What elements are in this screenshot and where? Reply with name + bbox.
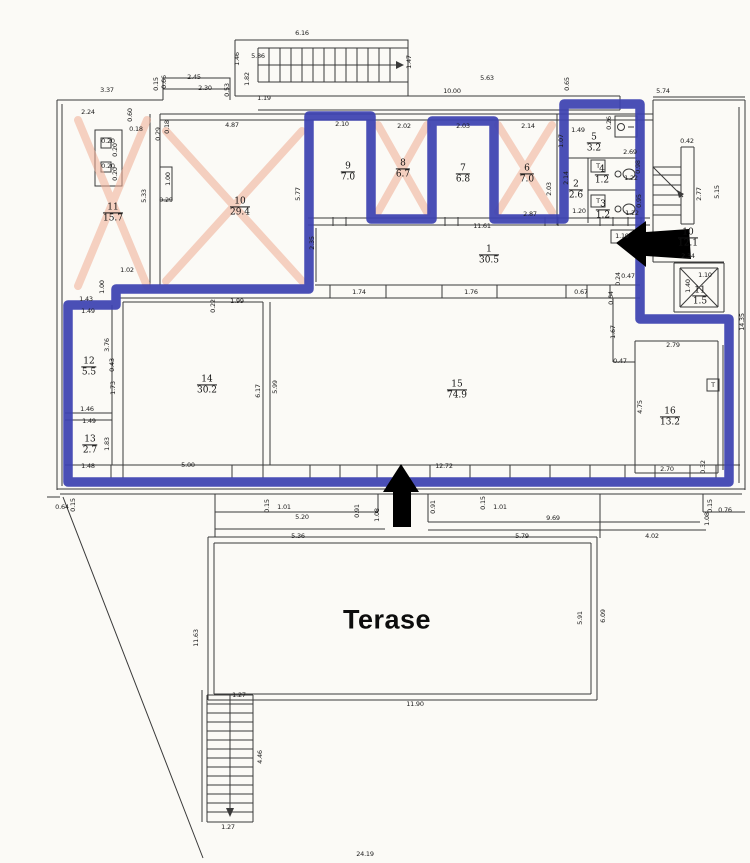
dim-label: 2.14 (521, 123, 535, 130)
dim-label: 1.27 (232, 692, 246, 699)
dim-label: 1.22 (625, 210, 639, 217)
dim-label: 2.03 (456, 123, 470, 130)
room-label-10: 1029.4 (230, 196, 250, 217)
dim-label: 0.29 (159, 197, 173, 204)
dim-label: 2.87 (523, 211, 537, 218)
dim-label: 1.43 (79, 296, 93, 303)
dim-label: 11.61 (473, 223, 491, 230)
dim-label: 1.19 (615, 233, 629, 240)
dim-label: 1.20 (572, 208, 586, 215)
dim-label: 0.18 (164, 120, 171, 134)
room-number: 13 (82, 434, 97, 445)
room-label-16: 1613.2 (660, 406, 680, 427)
dim-label: 1.08 (704, 512, 711, 526)
room-label-6: 67.0 (520, 163, 534, 184)
dim-label: 1.76 (464, 289, 478, 296)
dim-label: 1.99 (230, 298, 244, 305)
dim-label: T (711, 382, 715, 389)
room-number: 16 (660, 406, 680, 417)
dim-label: 0.15 (480, 496, 487, 510)
dim-label: 11.63 (193, 629, 200, 647)
room-label-11: 111.5 (692, 285, 707, 306)
dim-label: 4.46 (257, 750, 264, 764)
room-area: 7.0 (520, 175, 534, 185)
dim-label: 1.40 (685, 279, 692, 293)
dim-label: 0.26 (606, 116, 613, 130)
dim-label: 4.87 (225, 122, 239, 129)
dim-label: 0.20 (112, 143, 119, 157)
room-label-15: 1574.9 (447, 379, 467, 400)
arrow-up-icon (383, 464, 419, 527)
room-label-2: 22.6 (569, 179, 583, 200)
dim-label: 5.63 (480, 75, 494, 82)
dim-label: 0.15 (153, 77, 160, 91)
dim-label: 1.10 (698, 272, 712, 279)
room-number: 7 (456, 163, 470, 174)
dim-label: 0.22 (210, 299, 217, 313)
room-number: 1 (479, 244, 499, 255)
room-area: 13.2 (660, 418, 680, 428)
dim-label: 0.76 (718, 507, 732, 514)
dim-label: 5.00 (181, 462, 195, 469)
dim-label: 1.49 (81, 308, 95, 315)
room-label-11: 1115.7 (103, 202, 123, 223)
dim-label: 0.64 (55, 504, 69, 511)
room-number: 5 (587, 132, 601, 143)
dim-label: 2.70 (660, 466, 674, 473)
room-number: 15 (447, 379, 467, 390)
dim-label: 0.60 (127, 108, 134, 122)
dim-label: 0.24 (615, 272, 622, 286)
room-area: 1.2 (595, 176, 609, 186)
dim-label: 1.01 (493, 504, 507, 511)
dim-label: 1.74 (352, 289, 366, 296)
dim-label: 1.73 (110, 381, 117, 395)
floor-plan: 6.165.861.461.821.472.452.300.531.190.15… (0, 0, 750, 863)
room-label-7: 76.8 (456, 163, 470, 184)
dim-label: 1.46 (80, 406, 94, 413)
dim-label: 0.64 (608, 291, 615, 305)
room-area: 2.7 (82, 446, 97, 456)
dim-label: 3.76 (104, 338, 111, 352)
room-label-10: 1012.1 (678, 227, 698, 248)
room-area: 6.8 (456, 175, 470, 185)
dim-label: 2.45 (187, 74, 201, 81)
stairs-right (611, 100, 724, 312)
dim-label: 2.77 (696, 187, 703, 201)
dim-label: 2.02 (397, 123, 411, 130)
dim-label: 1.83 (104, 437, 111, 451)
room-area: 7.0 (341, 173, 355, 183)
dim-label: 6.16 (295, 30, 309, 37)
dim-label: 0.29 (155, 127, 162, 141)
room-number: 10 (678, 227, 698, 238)
room-label-3: 31.2 (596, 199, 610, 220)
dim-label: 1.49 (571, 127, 585, 134)
dim-label: 2.69 (623, 149, 637, 156)
dim-label: 2.34 (681, 253, 695, 260)
dim-label: 1.00 (99, 280, 106, 294)
room-label-13: 132.7 (82, 434, 97, 455)
dim-label: 1.27 (221, 824, 235, 831)
room-label-8: 86.7 (396, 158, 410, 179)
room-label-12: 125.5 (81, 356, 96, 377)
dim-label: 1.67 (610, 325, 617, 339)
room-number: 10 (230, 196, 250, 207)
dim-label: 1.47 (406, 55, 413, 69)
dim-label: 4.02 (645, 533, 659, 540)
dim-label: 5.99 (272, 380, 279, 394)
dim-label: 14.35 (739, 313, 746, 331)
room-label-1: 130.5 (479, 244, 499, 265)
dim-label: 0.91 (430, 500, 437, 514)
dim-label: 5.36 (291, 533, 305, 540)
room-area: 5.5 (81, 368, 96, 378)
room-area: 74.9 (447, 391, 467, 401)
dim-label: 4.75 (637, 400, 644, 414)
dim-label: 0.91 (354, 504, 361, 518)
dim-label: 5.79 (515, 533, 529, 540)
terrace-label: Terase (343, 605, 431, 636)
room-area: 1.5 (692, 297, 707, 307)
dim-label: 0.95 (636, 194, 643, 208)
dim-label: 11.90 (406, 701, 424, 708)
dim-label: 2.79 (666, 342, 680, 349)
room-number: 11 (692, 285, 707, 296)
dim-label: 24.19 (356, 851, 374, 858)
dim-label: 1.22 (624, 175, 638, 182)
room-number: 11 (103, 202, 123, 213)
dim-label: 2.03 (546, 182, 553, 196)
dim-label: 0.67 (574, 289, 588, 296)
terrace-and-stairs-bottom (63, 494, 745, 858)
dim-label: 0.15 (70, 498, 77, 512)
room-area: 29.4 (230, 208, 250, 218)
dim-label: 5.33 (141, 189, 148, 203)
dim-label: 2.35 (309, 236, 316, 250)
room-number: 8 (396, 158, 410, 169)
room-label-4: 41.2 (595, 164, 609, 185)
room-number: 6 (520, 163, 534, 174)
dim-label: 0.47 (621, 273, 635, 280)
room-label-9: 97.0 (341, 161, 355, 182)
dim-label: 5.86 (251, 53, 265, 60)
dim-label: 2.30 (198, 85, 212, 92)
dim-label: 0.53 (224, 83, 231, 97)
dim-label: 0.18 (129, 126, 143, 133)
dim-label: 0.15 (707, 499, 714, 513)
dim-label: 6.17 (255, 384, 262, 398)
dim-label: 0.15 (264, 499, 271, 513)
dim-label: 5.77 (295, 187, 302, 201)
dim-label: 0.98 (635, 160, 642, 174)
dim-label: 1.01 (277, 504, 291, 511)
dim-label: 0.43 (109, 358, 116, 372)
room-number: 4 (595, 164, 609, 175)
room-number: 12 (81, 356, 96, 367)
dim-label: 10.00 (443, 88, 461, 95)
dim-label: 1.07 (558, 134, 565, 148)
dim-label: 0.20 (112, 167, 119, 181)
dim-label: 1.19 (257, 95, 271, 102)
dim-label: 3.37 (100, 87, 114, 94)
room-area: 6.7 (396, 170, 410, 180)
room-area: 2.6 (569, 191, 583, 201)
room-number: 9 (341, 161, 355, 172)
room-number: 14 (197, 374, 217, 385)
room-area: 30.5 (479, 256, 499, 266)
dim-label: 0.47 (613, 358, 627, 365)
dim-label: 1.49 (82, 418, 96, 425)
room-number: 2 (569, 179, 583, 190)
room-area: 15.7 (103, 214, 123, 224)
dim-label: 1.46 (234, 52, 241, 66)
dim-label: 12.72 (435, 463, 453, 470)
dim-label: 0.32 (700, 460, 707, 474)
dim-label: 5.15 (714, 185, 721, 199)
dim-label: 5.20 (295, 514, 309, 521)
dim-label: 2.10 (335, 121, 349, 128)
dim-label: 2.24 (81, 109, 95, 116)
room-area: 30.2 (197, 386, 217, 396)
stairs-top (235, 40, 620, 110)
dim-label: 0.66 (161, 75, 168, 89)
dim-label: 6.09 (600, 609, 607, 623)
dim-label: 9.69 (546, 515, 560, 522)
floorplan-drawing (0, 0, 750, 863)
room-label-14: 1430.2 (197, 374, 217, 395)
dim-label: 1.00 (165, 172, 172, 186)
dim-label: 5.74 (656, 88, 670, 95)
dim-label: 5.91 (577, 611, 584, 625)
dim-label: 1.08 (374, 508, 381, 522)
dim-label: 1.82 (244, 72, 251, 86)
dim-label: 0.65 (564, 77, 571, 91)
dim-label: 1.48 (81, 463, 95, 470)
room-area: 3.2 (587, 144, 601, 154)
dim-label: 1.02 (120, 267, 134, 274)
room-area: 1.2 (596, 211, 610, 221)
dim-label: 0.42 (680, 138, 694, 145)
room-label-5: 53.2 (587, 132, 601, 153)
room-number: 3 (596, 199, 610, 210)
room-area: 12.1 (678, 239, 698, 249)
